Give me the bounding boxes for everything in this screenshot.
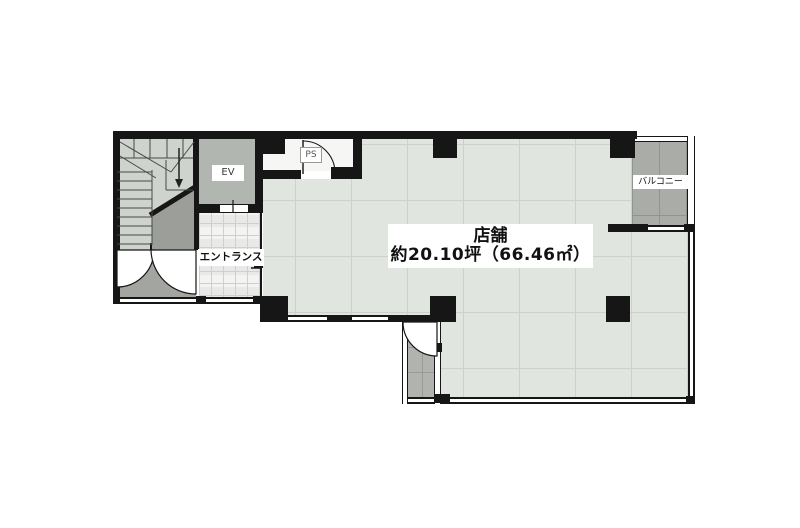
corner-block-se — [686, 396, 694, 404]
window-wall-east — [688, 228, 695, 404]
balcony-outer-top — [633, 136, 694, 142]
store-area-text: 約20.10坪（66.46㎡） — [390, 247, 590, 264]
top-wall-pillar-1 — [433, 139, 457, 158]
window-mullion-mid — [327, 315, 352, 322]
wall-segment-mid — [388, 315, 431, 322]
service-room-left-wall — [402, 320, 408, 404]
stair-elevator-divider-wall — [193, 131, 199, 250]
elevator-right-wall — [255, 131, 263, 211]
store-label: 店舗 約20.10坪（66.46㎡） — [388, 224, 593, 268]
ps-door-opening — [301, 171, 333, 179]
window-wall-left-bottom — [113, 297, 263, 304]
elevator-door-opening — [219, 204, 249, 213]
wall-segment-entry-right — [253, 296, 262, 304]
pillar-right — [606, 296, 630, 322]
store-room-name: 店舗 — [474, 228, 508, 245]
balcony-outer-right — [687, 136, 695, 232]
service-wall-block-1 — [434, 343, 442, 352]
elevator-bottom-wall-right — [249, 204, 263, 213]
stair-bottom-wall — [150, 243, 199, 250]
ev-label: EV — [212, 165, 244, 181]
ps-right-wall — [353, 138, 362, 179]
vestibule — [117, 250, 196, 300]
service-room-right-wall — [434, 322, 441, 404]
entrance-door-tick — [254, 266, 263, 268]
wall-segment-entry-left — [196, 296, 206, 304]
outer-wall-left — [113, 131, 120, 304]
entrance-label: エントランス — [198, 249, 264, 266]
service-wall-block-2 — [434, 394, 450, 403]
ps-bottom-wall-left — [263, 170, 301, 179]
ps-wall-stub — [263, 138, 285, 154]
balcony-corner-block — [684, 224, 694, 232]
pillar-left — [260, 296, 288, 322]
balcony-sill-bar — [608, 224, 648, 232]
ps-label: PS — [300, 147, 322, 163]
pillar-mid — [430, 296, 456, 322]
floor-plan: EV PS エントランス バルコニー 店舗 約20.10坪（66.46㎡） — [0, 0, 800, 528]
service-room — [406, 322, 435, 397]
elevator-bottom-wall-left — [199, 204, 219, 213]
top-wall-pillar-2 — [610, 137, 635, 158]
balcony-label: バルコニー — [633, 175, 688, 189]
staircase — [117, 135, 196, 250]
outer-wall-top — [113, 131, 637, 139]
